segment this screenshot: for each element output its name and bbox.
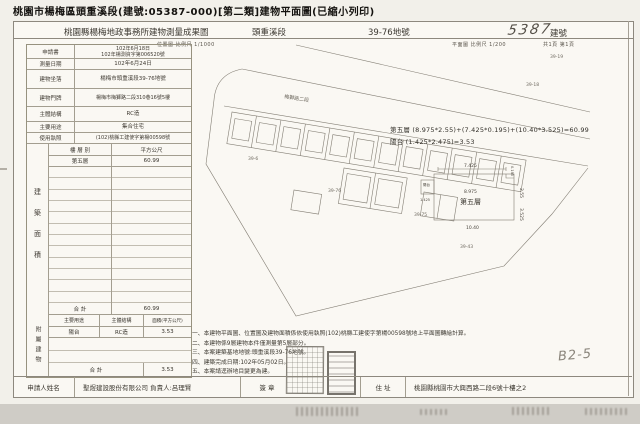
row-door-plate-value: 楊梅市梅獅路二段310巷16號5樓: [75, 89, 191, 107]
applicant-name: 聖煜建設股份有限公司 負責人:呂理賢: [75, 377, 248, 397]
address-label: 住 址: [361, 377, 405, 397]
empty-row: [49, 212, 191, 223]
empty-row: [49, 201, 191, 212]
map-parcel-label: 39-43: [460, 244, 473, 250]
row-license-value: (102)桃縣工建使字第楊00598號: [75, 133, 191, 144]
floor-total-value: 60.99: [112, 303, 191, 315]
empty-row: [49, 292, 191, 303]
road-name-label: 梅獅路二段: [284, 93, 310, 104]
row-usage-value: 集合住宅: [75, 122, 191, 133]
info-table: 申請書 102年6月18日 102年楊測資字第006520號 測量日期 102年…: [26, 44, 192, 378]
building-area-vertical-text: 建築面積: [33, 188, 43, 272]
empty-row: [49, 224, 191, 235]
empty-row: [49, 269, 191, 280]
map-parcel-label: 39-18: [526, 82, 539, 88]
attached-row-struct: RC造: [100, 327, 144, 338]
applicant-address: 桃園縣桃園市大興西路二段6號十樓之2: [406, 377, 630, 397]
row-usage-label: 主要用途: [27, 122, 75, 133]
plan-room-outline: [434, 174, 514, 220]
attached-row-area: 3.53: [144, 327, 191, 338]
map-building-a: [291, 190, 322, 214]
header-divider: [13, 38, 633, 39]
building-area-vertical-label: 建築面積: [27, 144, 49, 315]
note-2: 二、本建物係9層建物本件僅測量第5層部分。: [192, 340, 632, 350]
document-title: 桃園市楊梅區頭重溪段(建號:05387-000)[第二類]建物平面圖(已縮小列印…: [13, 3, 533, 18]
empty-row: [49, 338, 191, 351]
map-parcel-label: 39-76: [328, 188, 341, 194]
area-formula-floor5: 第五層 (8.975*2.55)+(7.425*0.195)+(10.40*3.…: [390, 124, 589, 134]
attached-total-label: 合 計: [49, 363, 144, 376]
faint-date-smudge: [585, 408, 630, 415]
empty-row: [49, 246, 191, 257]
floor-empty-rows: [49, 167, 191, 303]
plan-dim-bottom: 10.40: [466, 225, 479, 231]
floor-row-area: 60.99: [112, 156, 191, 167]
row-structure-label: 主體結構: [27, 107, 75, 122]
row-application-value: 102年6月18日 102年楊測資字第006520號: [75, 45, 191, 59]
plan-dim-right-upper: 2.55: [518, 188, 524, 198]
plan-room-label: 第五層: [460, 197, 481, 206]
attached-col-use: 主要用途: [49, 315, 100, 327]
floor-plan-sketch: 7.425 8.975 第五層 10.40 2.55 3.525 0.195 陽…: [408, 160, 530, 234]
scan-edge-mark: [0, 168, 7, 170]
application-number: 102年楊測資字第006520號: [101, 52, 165, 58]
attached-vertical-text: 附屬建物: [33, 326, 42, 366]
faint-text-smudge: [420, 409, 450, 415]
empty-row: [49, 351, 191, 364]
map-top-boundary: [296, 45, 590, 112]
attached-col-area: 面積(平方公尺): [144, 315, 191, 327]
col-header-floor: 樓 層 別: [49, 144, 112, 156]
empty-row: [49, 280, 191, 291]
plan-dim-right-lower: 3.525: [518, 208, 524, 221]
map-road-curve: [214, 69, 242, 100]
attached-col-struct: 主體結構: [100, 315, 144, 327]
row-license-label: 使用執照: [27, 133, 75, 144]
plan-balcony-width: 1.425: [420, 198, 430, 202]
note-1: 一、本建物平面圖、位置圖及建物面積係依使用執照(102)桃縣工建使字第楊0059…: [192, 330, 632, 340]
empty-row: [49, 178, 191, 189]
scan-bottom-band: [0, 404, 640, 424]
attached-empty-rows: [49, 338, 191, 363]
faint-text-smudge: [512, 407, 552, 415]
row-door-plate-label: 建物門牌: [27, 89, 75, 107]
col-header-area: 平方公尺: [112, 144, 191, 156]
empty-row: [49, 235, 191, 246]
attached-vertical-label: 附屬建物: [27, 315, 49, 377]
scanned-survey-document: 桃園市楊梅區頭重溪段(建號:05387-000)[第二類]建物平面圖(已縮小列印…: [0, 0, 640, 424]
office-title: 桃園縣楊梅地政事務所建物測量成果圖: [64, 26, 209, 38]
plan-dim-step: 0.195: [510, 166, 514, 176]
empty-row: [49, 258, 191, 269]
faint-stamp-smudge: [296, 407, 358, 416]
map-parcel-label: 39-6: [248, 156, 258, 162]
handwritten-building-number: 5387: [506, 21, 553, 39]
signature-label: 簽 章: [241, 377, 293, 397]
row-survey-date-value: 102年6月24日: [75, 59, 191, 70]
map-subject-block: [338, 168, 407, 214]
attached-total-value: 3.53: [144, 363, 191, 376]
attached-row-use: 陽台: [49, 327, 100, 338]
floor-row-name: 第五層: [49, 156, 112, 167]
location-map-sketch: 梅獅路二段 39-1939-1839-639-7639-7539-43: [198, 42, 592, 332]
row-application-label: 申請書: [27, 45, 75, 59]
map-parcel-label: 39-19: [550, 54, 563, 60]
row-structure-value: RC造: [75, 107, 191, 122]
plan-balcony-label: 陽台: [423, 182, 431, 187]
floor-total-label: 合 計: [49, 303, 112, 315]
applicant-row: 申請人姓名 聖煜建設股份有限公司 負責人:呂理賢 簽 章 住 址 桃園縣桃園市大…: [13, 376, 632, 397]
area-formula-balcony: 陽台 (1.425*2.475)=3.53: [390, 136, 475, 146]
empty-row: [49, 167, 191, 178]
land-section: 頭重溪段: [252, 26, 286, 38]
plan-dim-top: 7.425: [464, 163, 477, 169]
empty-row: [49, 190, 191, 201]
row-building-site-value: 楊梅市頭重溪段39-76地號: [75, 70, 191, 89]
floor-col-divider: [111, 167, 112, 303]
row-survey-date-label: 測量日期: [27, 59, 75, 70]
plan-room-width: 8.975: [464, 189, 477, 195]
row-building-site-label: 建物坐落: [27, 70, 75, 89]
applicant-label: 申請人姓名: [13, 377, 74, 397]
parcel-number: 39-76地號: [368, 26, 410, 38]
handwritten-margin-note: B2-5: [557, 347, 592, 365]
